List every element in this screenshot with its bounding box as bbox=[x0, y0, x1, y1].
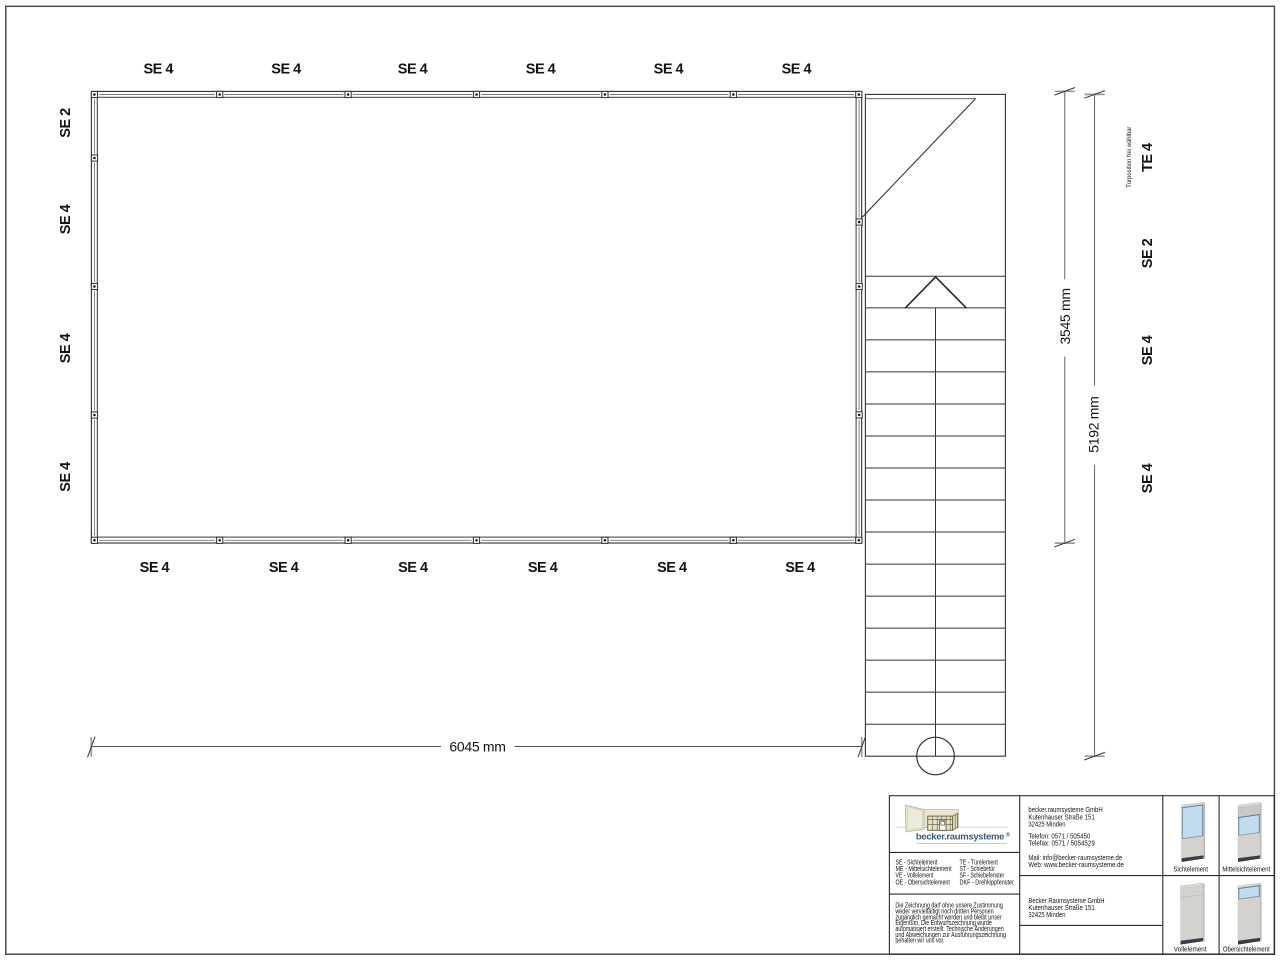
svg-text:Obersichtelement: Obersichtelement bbox=[1223, 944, 1270, 953]
svg-text:SE 4: SE 4 bbox=[271, 62, 301, 78]
svg-text:6045 mm: 6045 mm bbox=[449, 739, 505, 755]
svg-text:5192 mm: 5192 mm bbox=[1086, 396, 1102, 452]
svg-text:SE 4: SE 4 bbox=[398, 560, 428, 576]
svg-text:SE 4: SE 4 bbox=[526, 62, 556, 78]
svg-text:SE 4: SE 4 bbox=[140, 560, 170, 576]
svg-text:Türposition frei wählbar: Türposition frei wählbar bbox=[1126, 127, 1133, 188]
svg-text:SE 4: SE 4 bbox=[1140, 463, 1156, 493]
svg-text:SE 4: SE 4 bbox=[1140, 335, 1156, 365]
svg-text:Web: www.becker-raumsysteme.de: Web: www.becker-raumsysteme.de bbox=[1028, 860, 1124, 869]
svg-text:Mittelsichtelement: Mittelsichtelement bbox=[1222, 865, 1270, 874]
svg-text:SE 2: SE 2 bbox=[1140, 238, 1156, 268]
svg-text:OE - Obersichtelement: OE - Obersichtelement bbox=[896, 879, 950, 886]
svg-text:DKF - Drehkippfenster: DKF - Drehkippfenster bbox=[960, 879, 1015, 886]
svg-text:SE 4: SE 4 bbox=[785, 560, 815, 576]
svg-text:3545 mm: 3545 mm bbox=[1057, 288, 1073, 344]
svg-text:®: ® bbox=[1006, 832, 1011, 839]
svg-text:Telefax: 0571 / 5054529: Telefax: 0571 / 5054529 bbox=[1028, 839, 1094, 848]
svg-text:Vollelement: Vollelement bbox=[1174, 944, 1207, 953]
svg-text:SE 4: SE 4 bbox=[58, 333, 74, 363]
svg-text:SE 2: SE 2 bbox=[58, 108, 74, 138]
svg-text:TE 4: TE 4 bbox=[1140, 143, 1156, 172]
svg-text:SE 4: SE 4 bbox=[269, 560, 299, 576]
svg-text:SE 4: SE 4 bbox=[657, 560, 687, 576]
svg-text:SE 4: SE 4 bbox=[143, 62, 173, 78]
svg-text:SE 4: SE 4 bbox=[398, 62, 428, 78]
svg-text:behalten wir uns vor.: behalten wir uns vor. bbox=[895, 938, 944, 945]
svg-text:32425 Minden: 32425 Minden bbox=[1028, 910, 1065, 919]
svg-text:becker.raumsysteme: becker.raumsysteme bbox=[916, 831, 1004, 842]
svg-text:SE 4: SE 4 bbox=[528, 560, 558, 576]
svg-text:SE 4: SE 4 bbox=[782, 62, 812, 78]
svg-text:SE 4: SE 4 bbox=[58, 204, 74, 234]
svg-text:SE 4: SE 4 bbox=[654, 62, 684, 78]
svg-text:32425 Minden: 32425 Minden bbox=[1028, 819, 1065, 828]
svg-text:Sichtelement: Sichtelement bbox=[1174, 865, 1209, 874]
svg-text:SE 4: SE 4 bbox=[58, 462, 74, 492]
